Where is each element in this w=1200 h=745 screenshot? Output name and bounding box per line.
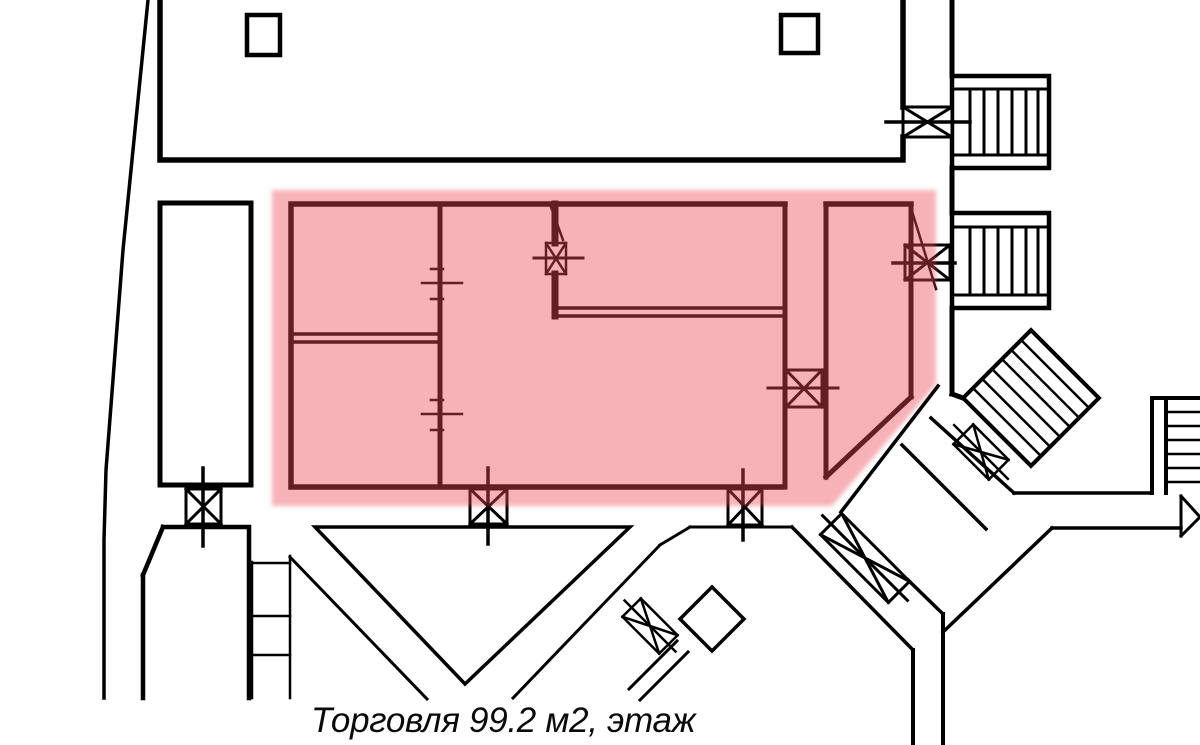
atrium-triangle <box>290 527 792 699</box>
door-icon <box>1181 496 1200 536</box>
window-icon <box>886 107 970 137</box>
column-box <box>247 15 280 55</box>
floor-plan <box>0 0 1200 745</box>
stairs-bottom-left <box>252 556 290 698</box>
stairs-mid-right <box>952 213 1049 308</box>
left-room <box>160 203 251 485</box>
caption: Торговля 99.2 м2, этаж <box>311 701 695 741</box>
window-icon <box>615 591 684 660</box>
window-icon <box>812 505 918 611</box>
window-icon <box>186 468 221 546</box>
lower-left-room <box>143 527 249 698</box>
floor-plan-page: Торговля 99.2 м2, этаж <box>0 0 1200 745</box>
stairs-diagonal <box>963 330 1099 466</box>
stairs-right-edge <box>1152 398 1200 493</box>
window-icon <box>944 415 1018 489</box>
column-box <box>781 15 818 53</box>
highlighted-unit[interactable] <box>272 190 936 506</box>
